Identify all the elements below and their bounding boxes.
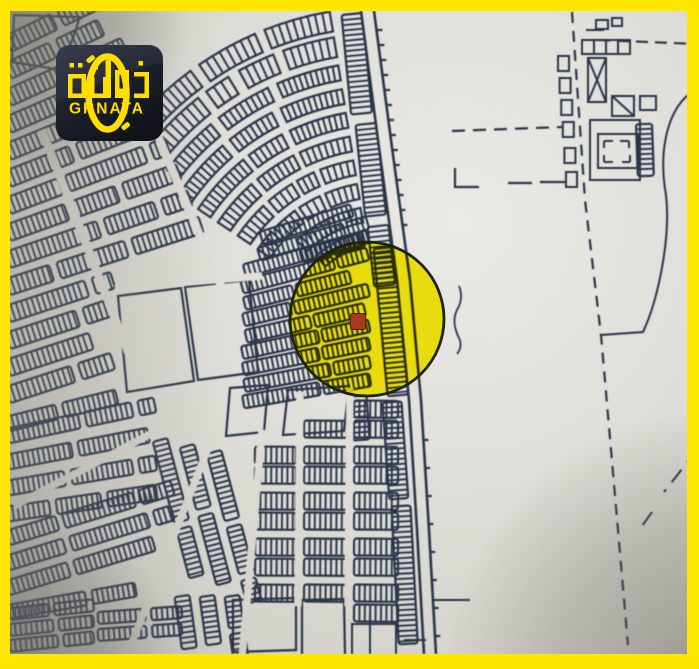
svg-text:GRNATA: GRNATA (69, 101, 145, 118)
